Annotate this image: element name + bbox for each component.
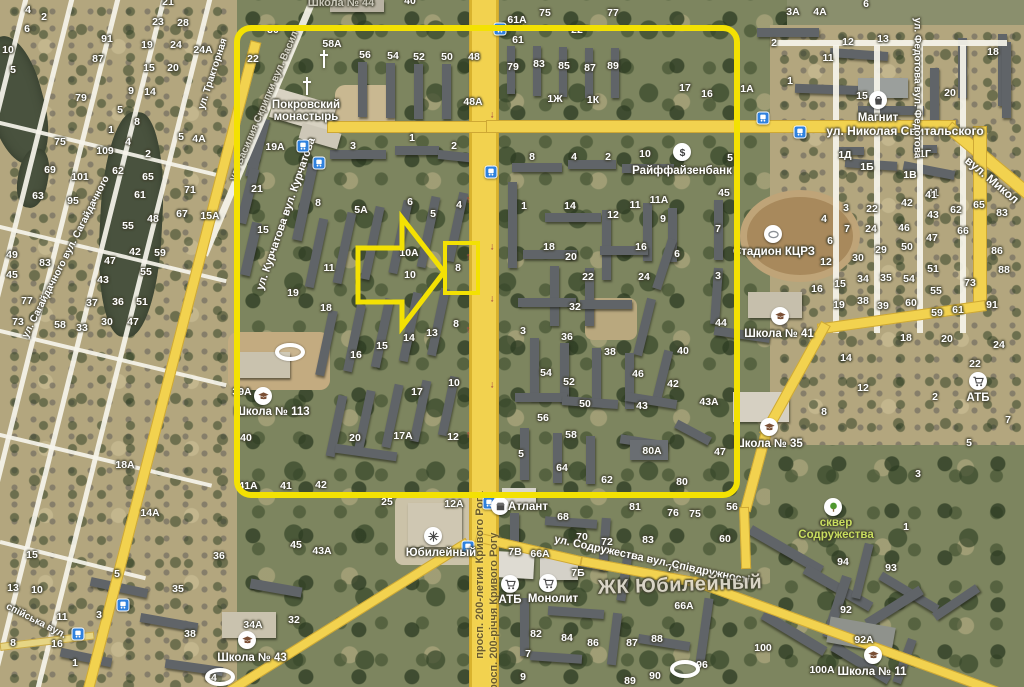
house-number-label: 92	[840, 604, 852, 616]
house-number-label: 59	[931, 307, 943, 319]
stadium-oval-icon[interactable]	[670, 660, 700, 678]
house-number-label: 61А	[507, 14, 526, 26]
house-number-label: 61	[512, 34, 524, 46]
house-number-label: 2	[41, 11, 47, 23]
house-number-label: 79	[75, 92, 87, 104]
house-number-label: 11	[822, 52, 833, 64]
house-number-label: 43	[97, 274, 109, 286]
school-icon[interactable]	[771, 307, 789, 325]
yellow-road	[327, 121, 487, 133]
house-number-label: 24	[993, 339, 1005, 351]
house-number-label: 81	[629, 501, 641, 513]
house-number-label: 21	[162, 0, 174, 8]
house-number-label: 77	[607, 7, 619, 19]
house-number-label: 5	[114, 568, 120, 580]
house-number-label: 93	[885, 562, 897, 574]
house-number-label: 47	[714, 446, 726, 458]
house-number-label: 62	[112, 165, 124, 177]
house-number-label: 4А	[813, 6, 826, 18]
house-number-label: 45	[6, 269, 18, 281]
house-number-label: 18А	[115, 459, 134, 471]
house-number-label: 83	[642, 534, 654, 546]
house-number-label: 24	[170, 39, 182, 51]
cross-icon[interactable]	[316, 49, 332, 69]
house-number-label: 38	[604, 346, 616, 358]
house-number-label: 11	[56, 611, 67, 623]
cart-icon[interactable]	[501, 575, 519, 593]
building	[330, 150, 386, 159]
school-icon[interactable]	[864, 646, 882, 664]
house-number-label: 17	[679, 82, 691, 94]
attraction-icon[interactable]	[424, 527, 442, 545]
building	[550, 266, 559, 326]
stadium-oval-icon[interactable]	[275, 343, 305, 361]
house-number-label: 6	[863, 0, 869, 10]
building	[515, 393, 567, 402]
house-number-label: 1	[787, 75, 793, 87]
house-number-label: 75	[54, 136, 66, 148]
house-number-label: 63	[32, 190, 44, 202]
house-number-label: 42	[667, 378, 679, 390]
house-number-label: 18	[987, 46, 999, 58]
house-number-label: 16	[811, 283, 823, 295]
poi-label: Юбилейный	[406, 547, 477, 559]
house-number-label: 22	[582, 271, 594, 283]
house-number-label: 13	[877, 33, 889, 45]
house-number-label: 4А	[192, 133, 205, 145]
house-number-label: 7	[844, 223, 850, 235]
road-direction-arrow: ↑	[466, 430, 471, 441]
house-number-label: 46	[898, 222, 910, 234]
bus-stop-icon[interactable]	[117, 599, 130, 612]
house-number-label: 15	[834, 278, 846, 290]
bag-icon[interactable]	[869, 91, 887, 109]
house-number-label: 22	[571, 24, 583, 36]
house-number-label: 20	[941, 333, 953, 345]
house-number-label: 95	[67, 195, 79, 207]
house-number-label: 12А	[444, 498, 463, 510]
svg-text:$: $	[679, 148, 685, 159]
house-number-label: 54	[387, 50, 399, 62]
house-number-label: 45	[290, 539, 302, 551]
house-number-label: 51	[136, 296, 148, 308]
house-number-label: 20	[944, 87, 956, 99]
house-number-label: 15А	[200, 210, 219, 222]
poi-label: Школа № 35	[733, 438, 803, 450]
house-number-label: 18	[320, 302, 332, 314]
house-number-label: 3	[715, 270, 721, 282]
school-icon[interactable]	[254, 387, 272, 405]
house-number-label: 8	[821, 406, 827, 418]
poi-label: Школа № 11	[838, 666, 907, 678]
house-number-label: 41А	[238, 480, 257, 492]
poi-label: Школа № 43	[217, 652, 287, 664]
house-number-label: 24	[865, 223, 877, 235]
poi-label: АТБ	[498, 594, 521, 606]
house-number-label: 36	[213, 550, 225, 562]
house-number-label: 11А	[650, 194, 669, 206]
house-number-label: 56	[726, 501, 738, 513]
yellow-road	[739, 507, 751, 569]
house-number-label: 66А	[530, 548, 549, 560]
house-number-label: 91	[986, 299, 998, 311]
house-number-label: 42	[315, 479, 327, 491]
house-number-label: 87	[626, 637, 638, 649]
house-number-label: 4	[25, 4, 31, 16]
poi-label: Монолит	[528, 593, 578, 605]
house-number-label: 3	[915, 468, 921, 480]
building	[386, 63, 395, 118]
house-number-label: 48А	[463, 96, 482, 108]
house-number-label: 22	[969, 358, 981, 370]
house-number-label: 32	[288, 614, 300, 626]
house-number-label: 8	[529, 151, 535, 163]
house-number-label: 36	[112, 296, 124, 308]
house-number-label: 40	[240, 432, 252, 444]
house-number-label: 48	[147, 213, 159, 225]
house-number-label: 5	[117, 104, 123, 116]
house-number-label: 87	[584, 62, 596, 74]
house-number-label: 100	[754, 642, 772, 654]
house-number-label: 48	[468, 51, 480, 63]
house-number-label: 8	[134, 116, 140, 128]
house-number-label: 17А	[393, 430, 412, 442]
house-number-label: 4	[456, 199, 462, 211]
house-number-label: 85	[558, 60, 570, 72]
house-number-label: 42	[901, 197, 913, 209]
house-number-label: 1Д	[838, 149, 851, 161]
house-number-label: 7	[525, 648, 531, 660]
house-number-label: 16	[635, 241, 647, 253]
house-number-label: 34	[857, 273, 869, 285]
house-number-label: 1Ж	[547, 93, 562, 105]
building	[530, 338, 539, 400]
house-number-label: 58	[54, 319, 66, 331]
house-number-label: 7	[715, 223, 721, 235]
house-number-label: 49	[6, 249, 18, 261]
road-direction-arrow: ↓	[490, 110, 495, 121]
house-number-label: 91	[101, 33, 113, 45]
house-number-label: 89	[607, 60, 619, 72]
house-number-label: 83	[996, 207, 1008, 219]
poi-label: Атлант	[508, 501, 548, 513]
cart-icon[interactable]	[969, 372, 987, 390]
house-number-label: 65	[973, 199, 985, 211]
house-number-label: 5	[966, 437, 972, 449]
house-number-label: 94	[837, 556, 849, 568]
building	[358, 62, 367, 117]
house-number-label: 5	[430, 208, 436, 220]
house-number-label: 47	[127, 316, 139, 328]
field-area	[740, 190, 860, 282]
house-number-label: 76	[667, 507, 679, 519]
house-number-label: 13	[426, 327, 438, 339]
house-number-label: 19	[833, 299, 845, 311]
building	[1002, 42, 1011, 118]
house-number-label: 2	[605, 151, 611, 163]
house-number-label: 43	[636, 400, 648, 412]
house-number-label: 1	[409, 132, 415, 144]
house-number-label: 52	[563, 376, 575, 388]
poi-label: Школа № 41	[744, 328, 814, 340]
house-number-label: 38	[857, 295, 869, 307]
house-number-label: 65	[142, 171, 154, 183]
house-number-label: 16	[350, 349, 362, 361]
house-number-label: 3А	[786, 6, 799, 18]
house-number-label: 12	[447, 431, 459, 443]
house-number-label: 6	[674, 248, 680, 260]
house-number-label: 52	[413, 51, 425, 63]
house-number-label: 12	[820, 256, 832, 268]
house-number-label: 6	[407, 196, 413, 208]
house-number-label: 43А	[699, 396, 718, 408]
map-canvas[interactable]: ↓↓↓↓↓↑↑↑↑ул. Николая Свитальскоговул. Ми…	[0, 0, 1024, 687]
house-number-label: 8	[453, 318, 459, 330]
house-number-label: 77	[21, 295, 33, 307]
house-number-label: 68	[557, 511, 569, 523]
house-number-label: 22	[866, 203, 878, 215]
house-number-label: 67	[176, 208, 188, 220]
house-number-label: 12	[842, 36, 854, 48]
house-number-label: 80	[676, 476, 688, 488]
house-number-label: 50	[441, 51, 453, 63]
building	[611, 48, 619, 98]
house-number-label: 36	[561, 331, 573, 343]
house-number-label: 64	[556, 462, 568, 474]
house-number-label: 17	[411, 386, 423, 398]
building	[508, 182, 517, 268]
house-number-label: 39А	[232, 386, 251, 398]
house-number-label: 47	[104, 255, 116, 267]
house-number-label: 6	[24, 23, 30, 35]
house-number-label: 89	[624, 675, 636, 687]
house-number-label: 75	[689, 508, 701, 520]
house-number-label: 30	[101, 316, 113, 328]
house-number-label: 20	[565, 251, 577, 263]
building	[553, 433, 562, 483]
house-number-label: 13	[7, 582, 19, 594]
cross-icon[interactable]	[299, 76, 315, 96]
house-number-label: 28	[177, 17, 189, 29]
house-number-label: 41	[925, 189, 937, 201]
house-number-label: 55	[930, 285, 942, 297]
house-number-label: 7Б	[571, 567, 584, 579]
house-number-label: 14	[564, 200, 576, 212]
house-number-label: 5	[10, 64, 16, 76]
road-direction-arrow: ↑	[466, 252, 471, 263]
house-number-label: 10	[639, 148, 651, 160]
house-number-label: 60	[719, 533, 731, 545]
house-number-label: 15	[26, 549, 38, 561]
house-number-label: 88	[998, 264, 1010, 276]
poi-label: Школа № 44	[308, 0, 375, 9]
house-number-label: 83	[39, 257, 51, 269]
school-icon[interactable]	[760, 418, 778, 436]
poi-label: ЖК Юбилейный	[598, 576, 763, 594]
house-number-label: 8	[10, 637, 16, 649]
house-number-label: 58	[565, 429, 577, 441]
house-number-label: 5	[178, 131, 184, 143]
bus-stop-icon[interactable]	[313, 157, 326, 170]
house-number-label: 10	[448, 377, 460, 389]
house-number-label: 50	[579, 398, 591, 410]
house-number-label: 8	[315, 197, 321, 209]
house-number-label: 35	[880, 272, 892, 284]
house-number-label: 38	[184, 628, 196, 640]
house-number-label: 19	[287, 287, 299, 299]
house-number-label: 75	[539, 7, 551, 19]
house-number-label: 9	[660, 213, 666, 225]
house-number-label: 4	[821, 213, 827, 225]
house-number-label: 19А	[265, 141, 284, 153]
house-number-label: 6	[827, 235, 833, 247]
house-number-label: 44	[715, 317, 727, 329]
house-number-label: 88	[651, 633, 663, 645]
cart-icon[interactable]	[539, 574, 557, 592]
house-number-label: 2	[145, 148, 151, 160]
house-number-label: 14	[840, 352, 852, 364]
white-road	[874, 45, 880, 333]
house-number-label: 19	[141, 39, 153, 51]
poi-label: Покровский монастырь	[272, 99, 340, 123]
house-number-label: 15	[376, 340, 388, 352]
poi-label: Школа № 113	[234, 406, 309, 418]
poi-label: Райффайзенбанк	[632, 165, 732, 177]
building	[580, 300, 632, 309]
house-number-label: 42	[129, 246, 141, 258]
house-number-label: 30	[852, 252, 864, 264]
street-label: просп. 200-річчя Кривого Рогу	[488, 532, 500, 687]
house-number-label: 40	[404, 0, 416, 7]
house-number-label: 5А	[354, 204, 367, 216]
house-number-label: 39	[877, 300, 889, 312]
house-number-label: 79	[507, 61, 519, 73]
house-number-label: 54	[903, 273, 915, 285]
house-number-label: 15	[856, 90, 868, 102]
stadium-oval-icon[interactable]	[205, 668, 235, 686]
house-number-label: 41	[280, 480, 292, 492]
bus-stop-icon[interactable]	[485, 166, 498, 179]
road-direction-arrow: ↑	[466, 195, 471, 206]
building	[930, 68, 939, 120]
bus-stop-icon[interactable]	[794, 126, 807, 139]
house-number-label: 3	[520, 325, 526, 337]
building	[559, 47, 567, 97]
house-number-label: 50	[901, 241, 913, 253]
building	[545, 213, 601, 222]
road-direction-arrow: ↓	[490, 242, 495, 253]
poi-label: Магнит	[858, 112, 899, 124]
house-number-label: 73	[964, 277, 976, 289]
house-number-label: 15	[143, 62, 155, 74]
house-number-label: 46	[632, 368, 644, 380]
house-number-label: 16	[701, 88, 713, 100]
house-number-label: 55	[122, 220, 134, 232]
house-number-label: 7В	[508, 546, 521, 558]
house-number-label: 109	[96, 145, 114, 157]
house-number-label: 82	[530, 628, 542, 640]
house-number-label: 14А	[140, 507, 159, 519]
house-number-label: 1Б	[860, 161, 873, 173]
house-number-label: 10	[31, 584, 43, 596]
white-road	[960, 45, 966, 333]
house-number-label: 90	[649, 670, 661, 682]
white-road	[772, 40, 1007, 46]
bus-stop-icon[interactable]	[494, 23, 507, 36]
house-number-label: 10	[2, 44, 14, 56]
tree-icon[interactable]	[824, 498, 842, 516]
house-number-label: 43	[927, 209, 939, 221]
house-number-label: 55	[140, 266, 152, 278]
house-number-label: 43А	[312, 545, 331, 557]
house-number-label: 1	[72, 657, 78, 669]
store-icon[interactable]	[491, 497, 509, 515]
house-number-label: 100А	[809, 664, 834, 676]
house-number-label: 33	[76, 322, 88, 334]
house-number-label: 62	[601, 474, 613, 486]
house-number-label: 20	[167, 62, 179, 74]
house-number-label: 61	[134, 189, 146, 201]
house-number-label: 2	[451, 140, 457, 152]
stadium-icon[interactable]	[764, 225, 782, 243]
house-number-label: 29	[875, 244, 887, 256]
house-number-label: 1	[521, 200, 527, 212]
building	[518, 298, 576, 307]
bus-stop-icon[interactable]	[757, 112, 770, 125]
house-number-label: 11	[629, 199, 640, 211]
street-label: просп. 200-летия Кривого Рога	[474, 491, 486, 659]
house-number-label: 37	[86, 297, 98, 309]
house-number-label: 71	[184, 184, 196, 196]
house-number-label: 8	[455, 262, 461, 274]
house-number-label: 84	[561, 632, 573, 644]
house-number-label: 22	[247, 53, 259, 65]
house-number-label: 14	[403, 332, 415, 344]
house-number-label: 3	[843, 202, 849, 214]
building	[757, 28, 819, 37]
house-number-label: 4	[125, 136, 131, 148]
house-number-label: 30	[267, 24, 279, 36]
house-number-label: 15	[257, 224, 269, 236]
building	[586, 436, 595, 484]
bus-stop-icon[interactable]	[72, 628, 85, 641]
house-number-label: 87	[92, 53, 104, 65]
house-number-label: 51	[927, 263, 939, 275]
house-number-label: 1	[903, 521, 909, 533]
house-number-label: 10	[404, 269, 416, 281]
house-number-label: 24А	[193, 44, 212, 56]
building	[512, 163, 562, 172]
house-number-label: 24	[638, 271, 650, 283]
house-number-label: 66	[957, 225, 969, 237]
dollar-icon[interactable]: $	[673, 143, 691, 161]
house-number-label: 47	[926, 232, 938, 244]
house-number-label: 1К	[587, 94, 599, 106]
house-number-label: 86	[587, 637, 599, 649]
house-number-label: 80А	[642, 445, 661, 457]
house-number-label: 3	[96, 609, 102, 621]
house-number-label: 2	[771, 37, 777, 49]
house-number-label: 83	[533, 58, 545, 70]
house-number-label: 18	[900, 332, 912, 344]
bus-stop-icon[interactable]	[297, 140, 310, 153]
house-number-label: 45	[718, 187, 730, 199]
school-icon[interactable]	[238, 631, 256, 649]
house-number-label: 54	[540, 367, 552, 379]
house-number-label: 5	[727, 152, 733, 164]
house-number-label: 25	[381, 496, 393, 508]
street-label: ул. Федотова вул. Федотова	[912, 18, 923, 159]
